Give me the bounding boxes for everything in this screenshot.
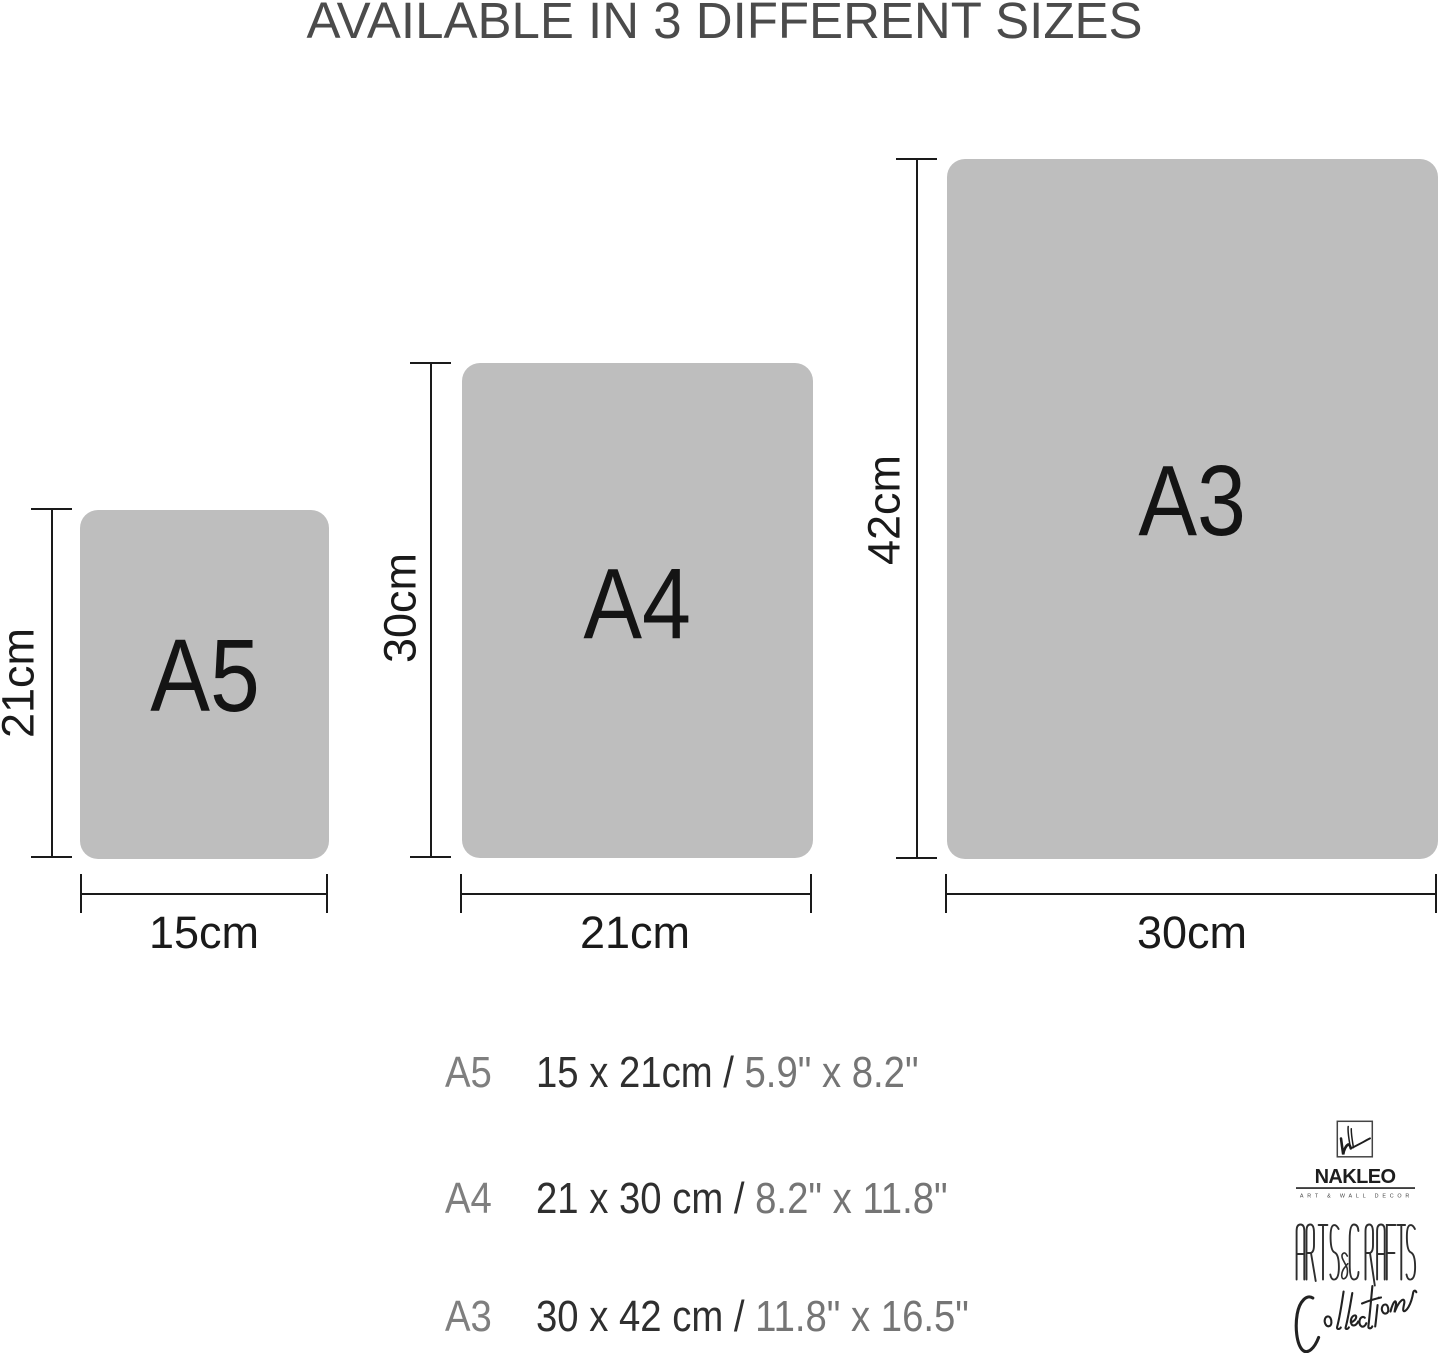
svg-text:NAKLEO: NAKLEO — [1315, 1166, 1396, 1188]
svg-text:ART & WALL DECOR: ART & WALL DECOR — [1300, 1194, 1413, 1200]
